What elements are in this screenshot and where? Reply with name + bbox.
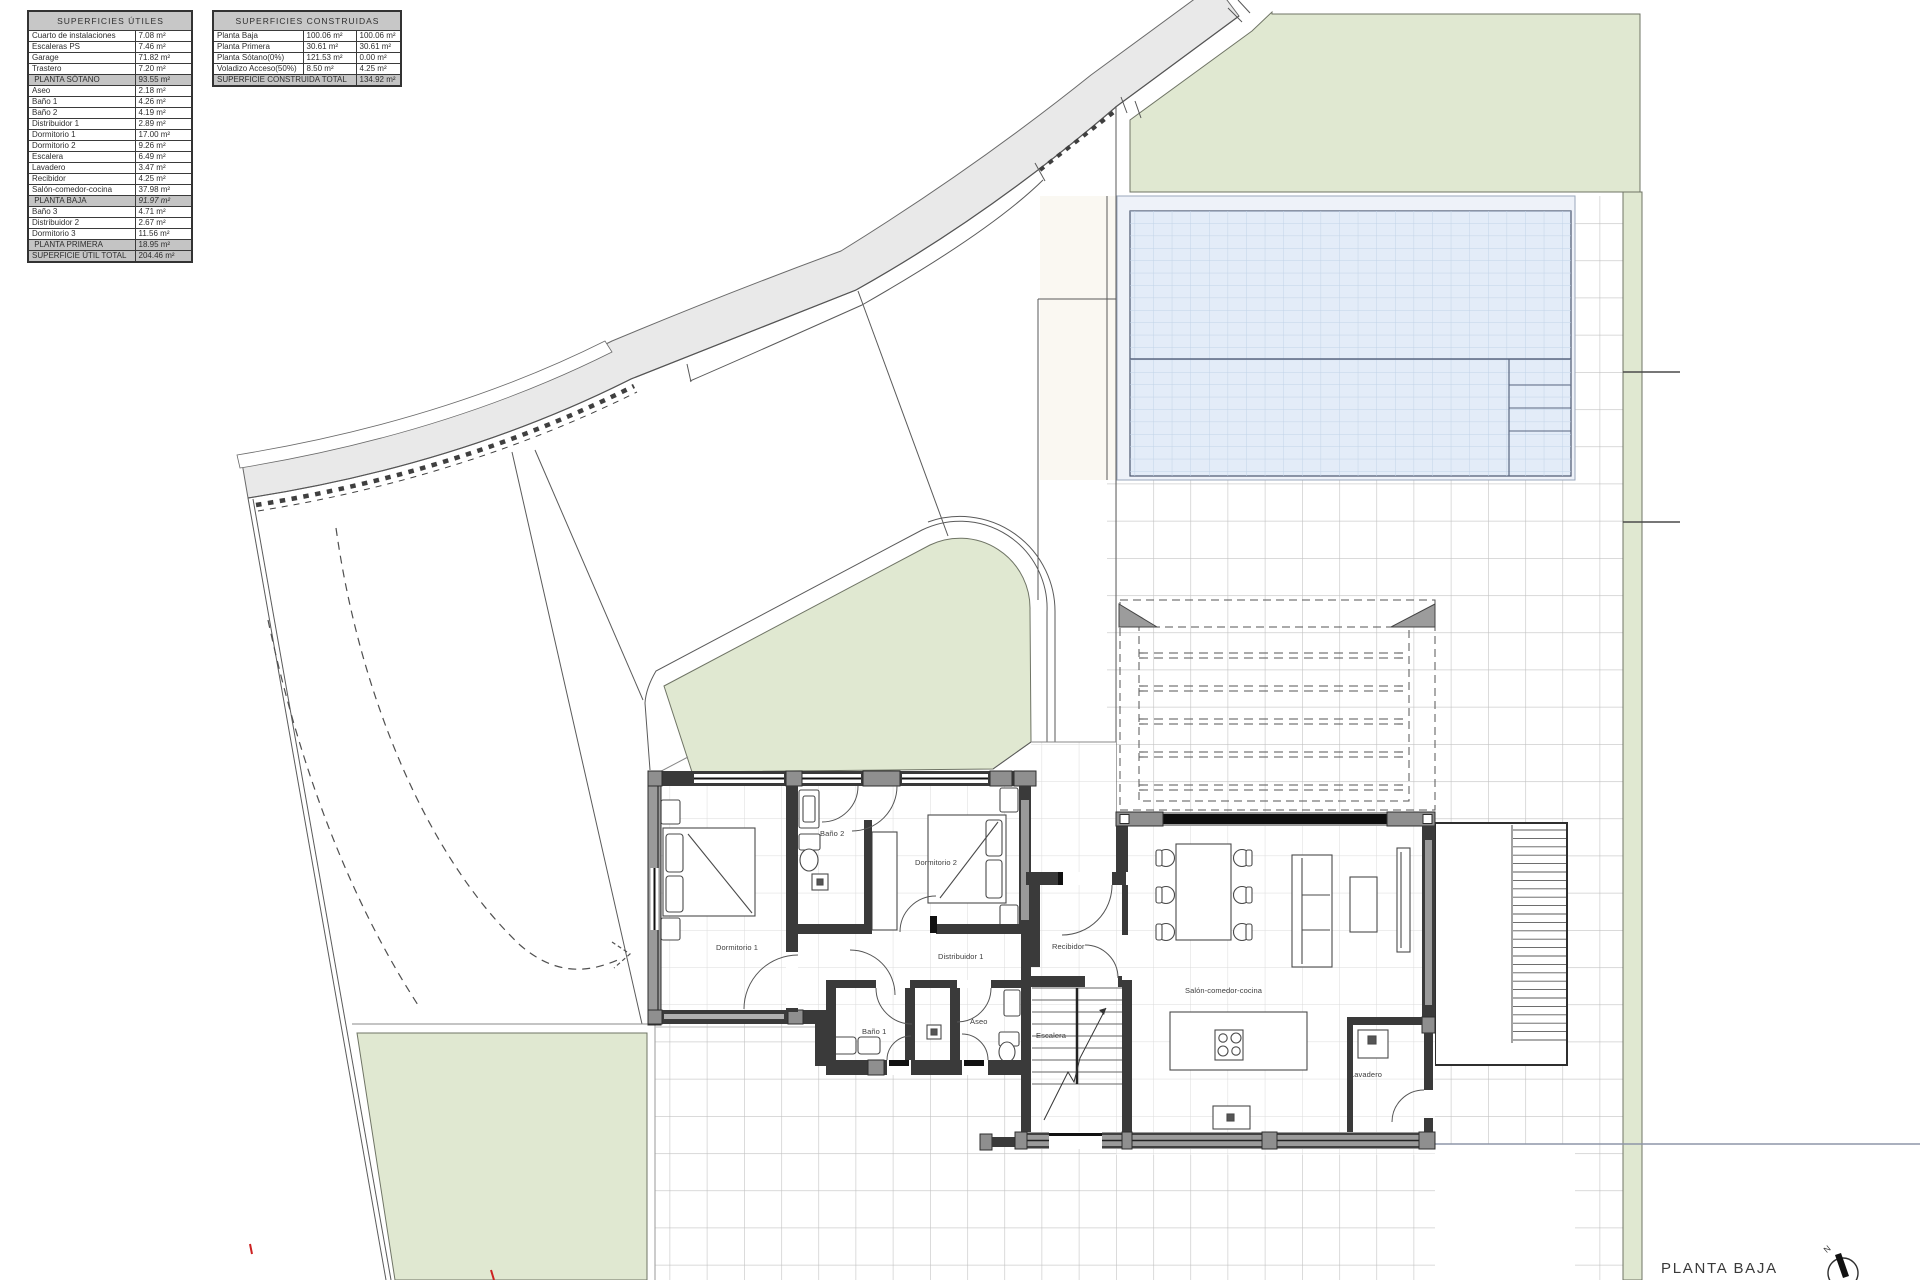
svg-text:N: N [1821, 1243, 1832, 1255]
svg-text:Baño 2: Baño 2 [820, 829, 844, 838]
svg-text:Dormitorio 1: Dormitorio 1 [716, 943, 758, 952]
svg-text:Distribuidor 1: Distribuidor 1 [938, 952, 984, 961]
svg-text:Recibidor: Recibidor [1052, 942, 1085, 951]
svg-text:Dormitorio 2: Dormitorio 2 [915, 858, 957, 867]
svg-text:Salón-comedor-cocina: Salón-comedor-cocina [1185, 986, 1263, 995]
svg-text:Escalera: Escalera [1036, 1031, 1067, 1040]
svg-text:Lavadero: Lavadero [1350, 1070, 1382, 1079]
svg-text:Baño 1: Baño 1 [862, 1027, 886, 1036]
svg-text:Aseo: Aseo [970, 1017, 988, 1026]
